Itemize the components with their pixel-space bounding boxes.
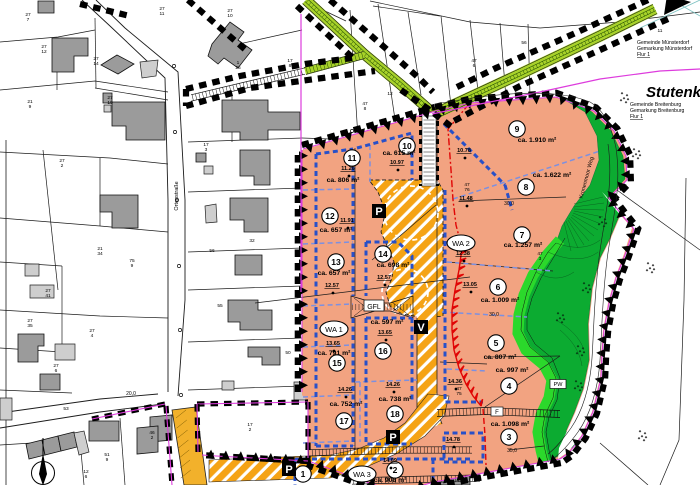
svg-text:F: F — [495, 410, 499, 416]
svg-text:35,0: 35,0 — [507, 448, 517, 454]
svg-text:12.38: 12.38 — [456, 251, 470, 257]
svg-text:3: 3 — [507, 432, 512, 442]
svg-text:9: 9 — [131, 263, 134, 269]
svg-text:13.65: 13.65 — [378, 330, 392, 336]
svg-text:2: 2 — [61, 163, 64, 169]
svg-text:55: 55 — [217, 303, 223, 309]
svg-text:WA 3: WA 3 — [353, 470, 371, 479]
svg-text:1: 1 — [301, 469, 306, 479]
svg-text:75: 75 — [456, 391, 462, 397]
svg-text:41: 41 — [45, 293, 51, 299]
svg-text:76: 76 — [464, 187, 470, 193]
svg-text:11: 11 — [658, 28, 663, 34]
svg-text:10: 10 — [227, 13, 233, 19]
svg-text:P: P — [375, 206, 382, 218]
svg-text:14.78: 14.78 — [446, 437, 460, 443]
svg-text:7: 7 — [27, 17, 30, 23]
svg-text:30,0: 30,0 — [504, 201, 514, 207]
svg-text:7: 7 — [520, 230, 525, 240]
svg-text:35: 35 — [27, 323, 33, 329]
svg-text:15: 15 — [332, 358, 342, 368]
svg-text:53: 53 — [63, 406, 69, 412]
svg-text:ca. 806 m²: ca. 806 m² — [327, 177, 361, 184]
svg-text:3: 3 — [539, 256, 542, 262]
svg-text:3: 3 — [205, 147, 208, 153]
svg-text:14: 14 — [378, 249, 388, 259]
svg-text:18: 18 — [390, 409, 400, 419]
svg-text:ca. 1.257 m²: ca. 1.257 m² — [504, 242, 543, 249]
svg-text:13: 13 — [331, 257, 341, 267]
svg-text:P: P — [389, 432, 396, 444]
svg-text:ca. 597 m²: ca. 597 m² — [371, 319, 405, 326]
svg-text:GFL: GFL — [367, 304, 381, 311]
svg-text:11.91: 11.91 — [340, 218, 353, 224]
svg-text:30,0: 30,0 — [489, 312, 499, 318]
svg-text:Stutenkamp: Stutenkamp — [646, 84, 700, 101]
svg-text:ca. 997 m²: ca. 997 m² — [496, 367, 530, 374]
svg-text:11: 11 — [160, 11, 165, 17]
svg-text:14.26: 14.26 — [338, 387, 352, 393]
svg-text:2: 2 — [393, 465, 398, 475]
svg-text:11.26: 11.26 — [341, 166, 354, 172]
svg-text:PW: PW — [554, 382, 564, 388]
svg-text:10.78: 10.78 — [457, 148, 471, 154]
svg-text:ca. 698 m²: ca. 698 m² — [377, 262, 411, 269]
svg-text:12: 12 — [387, 91, 393, 97]
svg-text:ca. 908 m²: ca. 908 m² — [374, 477, 408, 484]
svg-text:19: 19 — [107, 100, 113, 106]
svg-text:5: 5 — [494, 338, 499, 348]
svg-text:WA 1: WA 1 — [325, 325, 343, 334]
svg-text:14: 14 — [93, 61, 99, 67]
svg-text:6: 6 — [496, 282, 501, 292]
svg-text:6: 6 — [85, 474, 88, 480]
svg-text:56: 56 — [521, 40, 527, 46]
svg-text:ca. 807 m²: ca. 807 m² — [484, 354, 518, 361]
svg-text:10.97: 10.97 — [390, 160, 404, 166]
svg-text:9: 9 — [29, 104, 32, 110]
svg-text:ca. 1.622 m²: ca. 1.622 m² — [533, 172, 572, 179]
svg-text:2: 2 — [249, 427, 252, 433]
svg-text:Flur 1: Flur 1 — [637, 52, 650, 58]
svg-text:11: 11 — [348, 153, 357, 163]
svg-text:12: 12 — [325, 211, 335, 221]
svg-text:17: 17 — [339, 416, 349, 426]
svg-text:Flur 1: Flur 1 — [630, 114, 643, 120]
svg-text:V: V — [417, 322, 425, 334]
svg-text:14.09: 14.09 — [383, 458, 397, 464]
svg-text:8: 8 — [524, 182, 529, 192]
svg-text:11.48: 11.48 — [459, 196, 472, 202]
svg-text:ca. 1.910 m²: ca. 1.910 m² — [518, 137, 557, 144]
svg-text:14.26: 14.26 — [386, 382, 400, 388]
svg-text:6: 6 — [55, 368, 58, 374]
svg-text:8: 8 — [289, 63, 292, 69]
svg-text:ca. 657 m²: ca. 657 m² — [318, 270, 352, 277]
svg-text:ca. 1.098 m²: ca. 1.098 m² — [491, 421, 530, 428]
svg-text:WA 2: WA 2 — [452, 239, 470, 248]
svg-text:26: 26 — [235, 65, 241, 71]
svg-text:50: 50 — [285, 350, 291, 356]
svg-text:13.65: 13.65 — [326, 341, 340, 347]
svg-text:ca. 1.009 m²: ca. 1.009 m² — [481, 297, 520, 304]
svg-text:ca. 615 m²: ca. 615 m² — [383, 150, 417, 157]
svg-text:ca. 752 m²: ca. 752 m² — [330, 401, 364, 408]
svg-text:8: 8 — [364, 106, 367, 112]
svg-text:34: 34 — [97, 251, 103, 257]
svg-text:P: P — [285, 464, 292, 476]
svg-text:13.05: 13.05 — [463, 282, 477, 288]
svg-text:9: 9 — [106, 457, 109, 463]
svg-text:ca. 738 m²: ca. 738 m² — [379, 396, 413, 403]
svg-text:12: 12 — [41, 49, 47, 55]
svg-text:4: 4 — [91, 333, 94, 339]
svg-text:20,0: 20,0 — [126, 391, 136, 397]
svg-text:Ortenstraße: Ortenstraße — [174, 181, 180, 210]
svg-text:56: 56 — [209, 248, 215, 254]
svg-text:32: 32 — [249, 238, 255, 244]
svg-text:6: 6 — [473, 63, 476, 69]
svg-text:2: 2 — [151, 435, 154, 441]
svg-text:12.57: 12.57 — [325, 283, 339, 289]
svg-text:14.36: 14.36 — [448, 379, 462, 385]
svg-text:9: 9 — [515, 124, 520, 134]
svg-text:12.57: 12.57 — [377, 275, 391, 281]
svg-text:4: 4 — [507, 381, 512, 391]
svg-text:16: 16 — [378, 346, 388, 356]
